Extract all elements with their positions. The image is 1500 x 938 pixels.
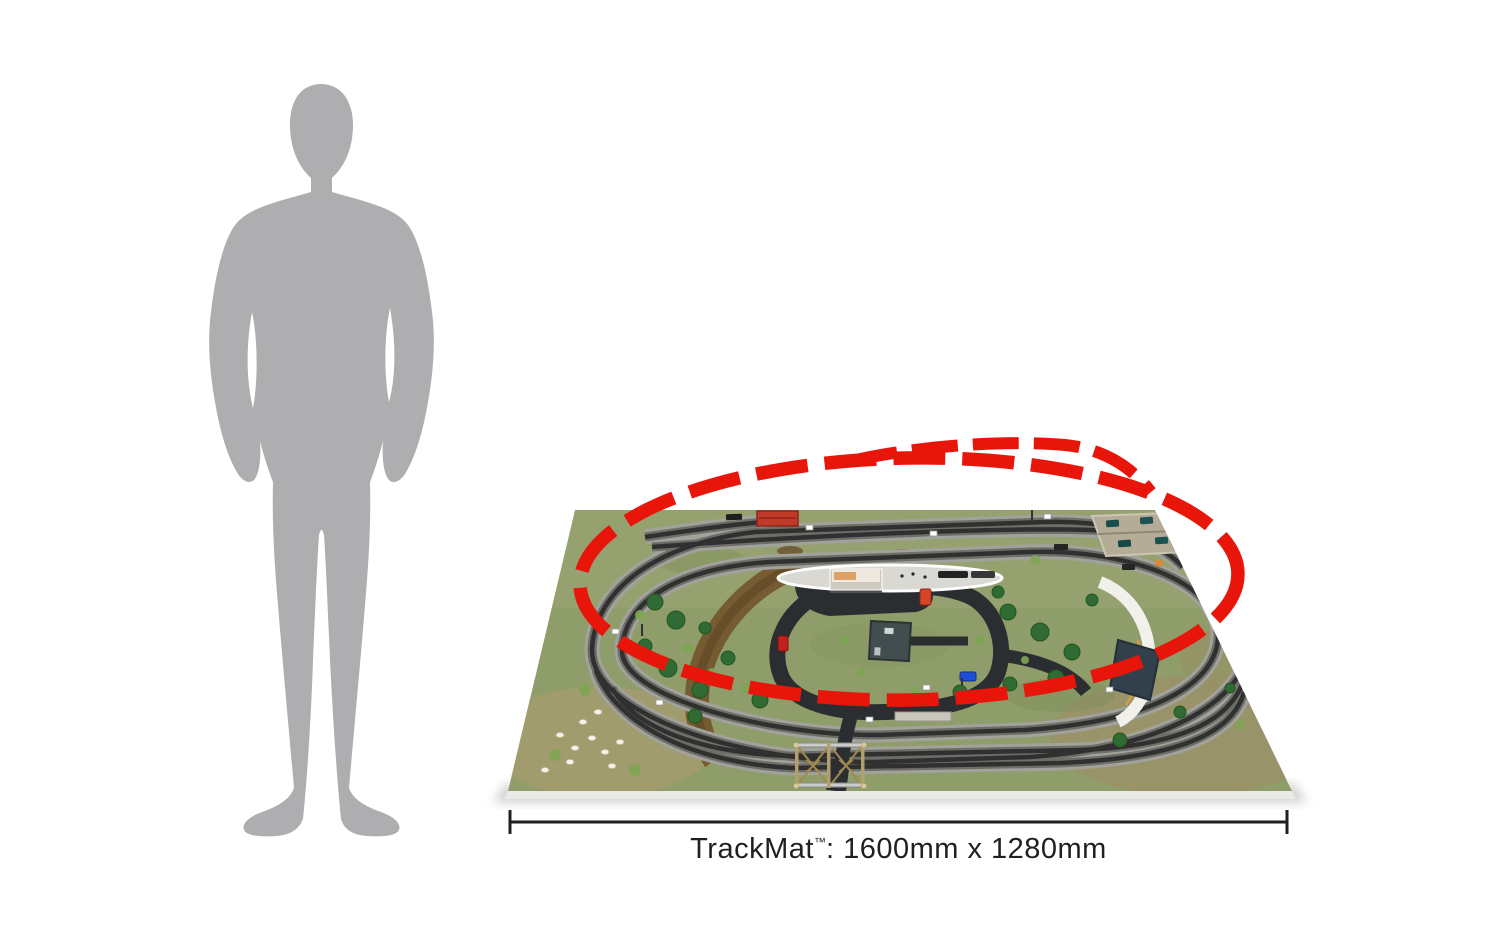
dimension-line bbox=[510, 810, 1287, 834]
red-lineside-building bbox=[757, 511, 798, 526]
illustration-canvas bbox=[0, 0, 1500, 938]
product-scale-image: TrackMat™: 1600mm x 1280mm bbox=[0, 0, 1500, 938]
person-silhouette bbox=[209, 84, 434, 836]
trackmat-caption: TrackMat™: 1600mm x 1280mm bbox=[510, 833, 1287, 866]
person-silhouette-shape bbox=[209, 84, 434, 836]
product-name: TrackMat bbox=[690, 833, 814, 865]
model-van bbox=[920, 589, 931, 605]
model-train bbox=[938, 571, 968, 578]
trackmat-illustration bbox=[485, 506, 1330, 803]
trademark-symbol: ™ bbox=[814, 835, 826, 849]
center-building bbox=[869, 621, 911, 661]
mat-edge bbox=[504, 791, 1296, 799]
mat-dimensions: 1600mm x 1280mm bbox=[843, 833, 1107, 865]
spare-platform-piece bbox=[895, 712, 951, 721]
caption-separator: : bbox=[826, 833, 843, 865]
model-car-red bbox=[778, 636, 788, 651]
